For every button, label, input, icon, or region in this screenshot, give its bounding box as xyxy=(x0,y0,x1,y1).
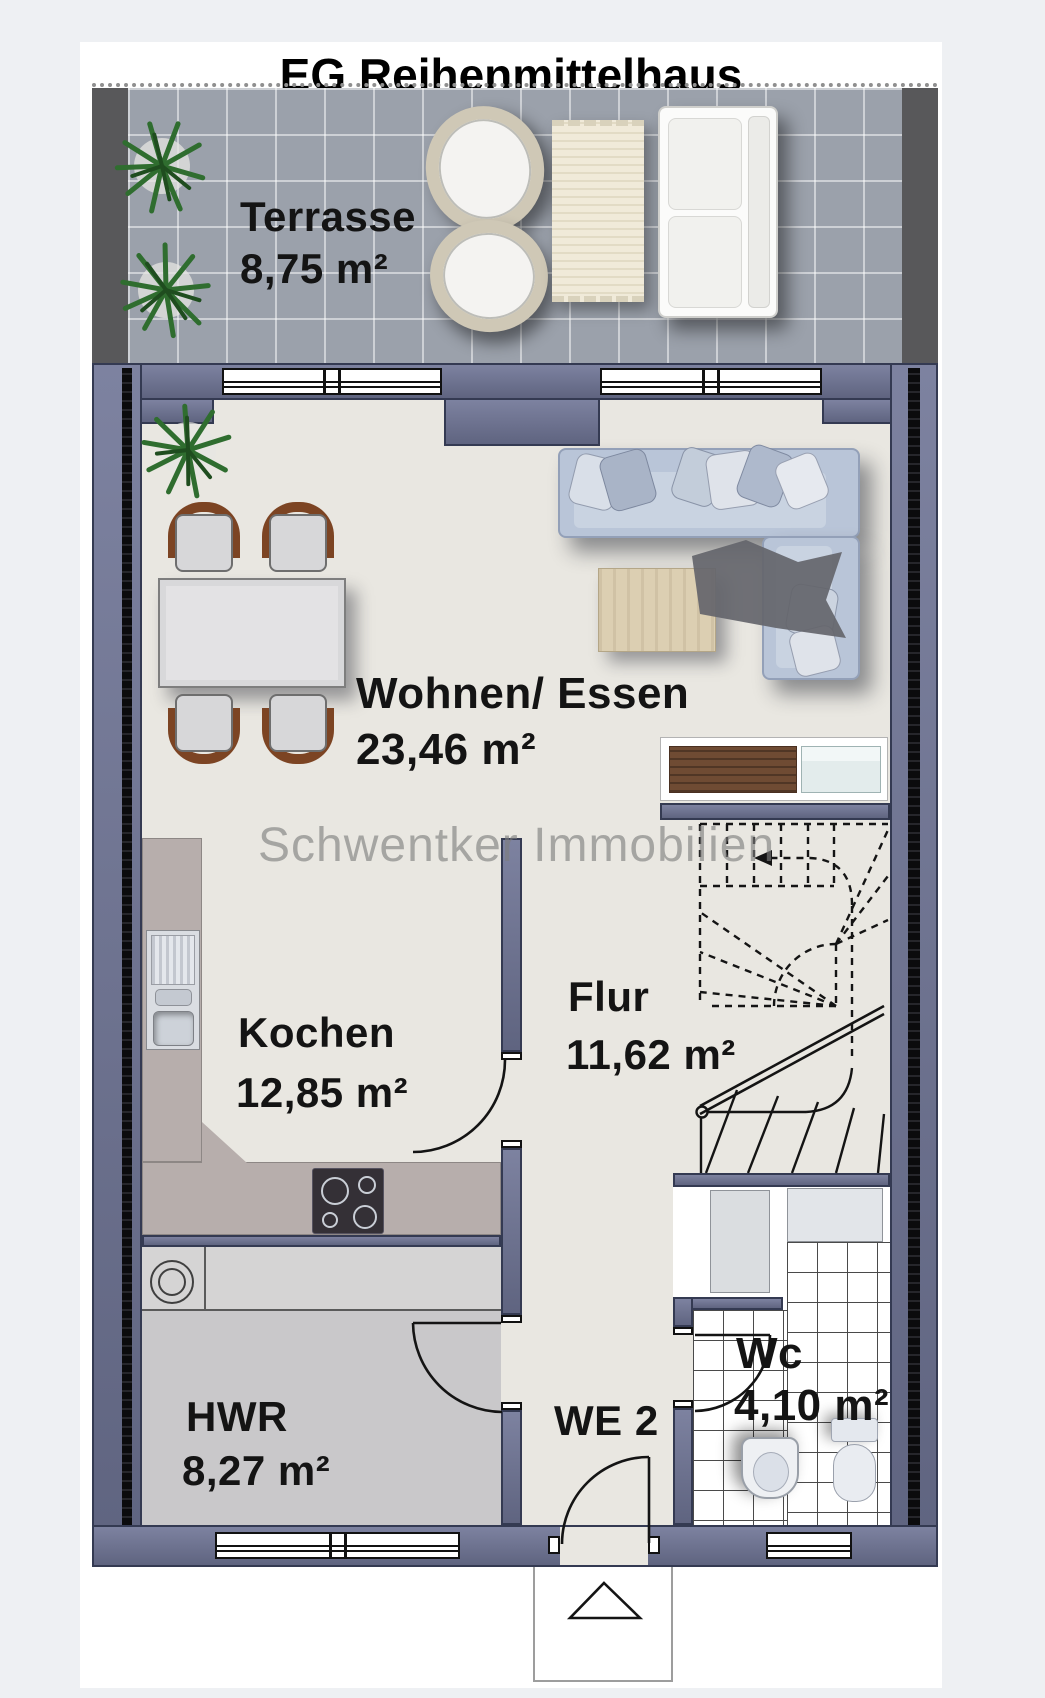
dining-chair xyxy=(166,502,244,576)
chair-seat xyxy=(269,514,327,572)
dining-chair xyxy=(166,690,244,764)
party-wall-insulation-right xyxy=(908,368,920,1525)
room-label-flur: Flur xyxy=(568,976,649,1018)
room-area-wohnen: 23,46 m² xyxy=(356,728,536,772)
window-wc xyxy=(766,1532,852,1559)
wall-hwr-entry xyxy=(501,1410,522,1525)
wall-wc-left-upper xyxy=(673,1297,693,1327)
cooktop xyxy=(312,1168,384,1234)
washing-machine-drum xyxy=(158,1268,186,1296)
burner xyxy=(358,1176,376,1194)
door-sill xyxy=(673,1400,693,1408)
burner xyxy=(353,1205,377,1229)
entrance-porch xyxy=(533,1567,673,1682)
window-mullion xyxy=(323,370,341,393)
room-area-kochen: 12,85 m² xyxy=(236,1072,408,1114)
sideboard-wood-door xyxy=(669,746,797,793)
toilet-bowl xyxy=(833,1444,876,1502)
door-sill xyxy=(501,1052,522,1060)
kitchen-sink xyxy=(146,930,200,1050)
room-area-terrasse: 8,75 m² xyxy=(240,248,388,290)
dining-table xyxy=(158,578,346,688)
window-terrace-right xyxy=(600,368,822,395)
chair-seat xyxy=(175,694,233,752)
sideboard xyxy=(660,737,888,801)
wall-left-party xyxy=(92,363,142,1567)
room-label-hwr: HWR xyxy=(186,1396,288,1438)
window-hwr xyxy=(215,1532,460,1559)
sideboard-glass-door xyxy=(801,746,881,793)
wc-sink-bowl xyxy=(753,1452,789,1492)
outdoor-sofa xyxy=(658,106,778,318)
window-terrace-left xyxy=(222,368,442,395)
sofa-cushion xyxy=(668,216,742,308)
terrace-side-wall-left xyxy=(92,88,128,363)
door-sill xyxy=(501,1140,522,1148)
door-sill xyxy=(501,1315,522,1323)
room-label-terrasse: Terrasse xyxy=(240,196,416,238)
chair-seat xyxy=(269,694,327,752)
burner xyxy=(322,1212,338,1228)
wall-wc-left-lower xyxy=(673,1408,693,1525)
dining-chair xyxy=(260,690,338,764)
sofa-cushion xyxy=(668,118,742,210)
wc-sink xyxy=(741,1437,799,1499)
room-area-wc: 4,10 m² xyxy=(734,1384,889,1428)
wall-top-pier xyxy=(444,398,600,446)
door-sill xyxy=(648,1536,660,1554)
door-sill xyxy=(501,1402,522,1410)
room-label-kochen: Kochen xyxy=(238,1012,395,1054)
wall-kitchen-hwr xyxy=(142,1235,501,1247)
sink-basin xyxy=(153,1011,194,1046)
coffee-table xyxy=(598,568,716,652)
window-mullion xyxy=(329,1534,347,1557)
sink-drainer xyxy=(151,935,195,985)
party-wall-insulation-left xyxy=(122,368,132,1525)
worktop-divider xyxy=(204,1247,206,1311)
room-area-flur: 11,62 m² xyxy=(566,1034,736,1076)
wall-under-stairs xyxy=(673,1173,890,1187)
burner xyxy=(321,1177,349,1205)
sofa-backrest xyxy=(748,116,770,308)
sink-faucet xyxy=(155,989,192,1006)
outdoor-mat xyxy=(552,120,644,302)
room-label-wc: Wc xyxy=(736,1332,803,1376)
dining-chair xyxy=(260,502,338,576)
wc-cabinet xyxy=(787,1188,883,1242)
window-mullion xyxy=(702,370,720,393)
terrace-plot-edge xyxy=(92,83,938,87)
unit-label: WE 2 xyxy=(554,1400,659,1442)
terrace-side-wall-right xyxy=(902,88,938,363)
entrance-door-opening xyxy=(560,1527,648,1565)
wardrobe-cabinet xyxy=(710,1190,770,1293)
room-area-hwr: 8,27 m² xyxy=(182,1450,330,1492)
door-sill xyxy=(548,1536,560,1554)
floor-plan-canvas: EG Reihenmittelhaus Terrasse 8,75 m² xyxy=(0,0,1045,1698)
toilet xyxy=(827,1418,883,1504)
hwr-worktop xyxy=(142,1247,501,1311)
door-sill xyxy=(673,1327,693,1335)
chair-seat xyxy=(175,514,233,572)
watermark: Schwentker Immobilien xyxy=(258,818,775,873)
wall-kitchen-hall xyxy=(501,1148,522,1315)
room-label-wohnen: Wohnen/ Essen xyxy=(356,672,689,716)
